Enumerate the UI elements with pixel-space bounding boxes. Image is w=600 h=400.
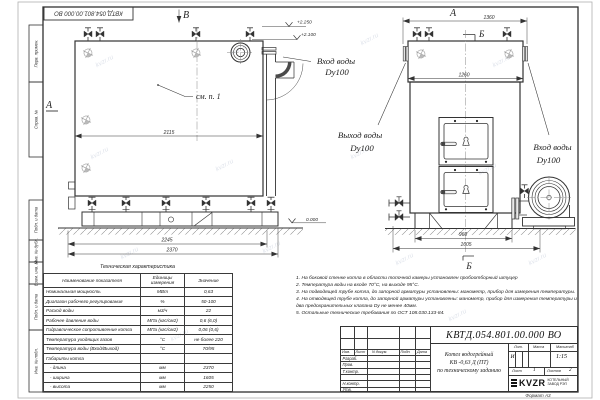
table-row: Рабочее давление водыМПа (кгс/см2)0,6 (6… [44, 316, 233, 326]
param-name: Рабочее давление воды [44, 316, 141, 326]
dim-2245: 2245 [160, 238, 172, 244]
param-name: Номинальная мощность [44, 287, 141, 297]
param-unit: МПа (кгс/см2) [141, 325, 185, 335]
stamp-inv-podl: Инв. № подл. [34, 348, 39, 374]
rev-col-izm: Изм. [342, 350, 350, 354]
docnum-top-box: КВТД.054.801.00.000 ВО [44, 7, 133, 20]
dim-1605: 1605 [460, 242, 471, 248]
table-row: Номинальная мощностьМВт0,63 [44, 287, 233, 297]
param-name: Расход воды [44, 306, 141, 316]
col-header: Наименование показателя [44, 273, 141, 287]
callout-see-p1: см. п. 1 [157, 84, 221, 101]
scale-header: Масштаб [556, 345, 574, 349]
svg-text:Dy100: Dy100 [536, 155, 561, 165]
title-block: КВТД.054.801.00.000 ВО Изм. Лист N докум… [340, 326, 578, 392]
dim-960: 960 [459, 232, 468, 238]
role-tkontr: Т.контр. [343, 369, 360, 374]
param-name: Гидравлическое сопротивление котла [44, 325, 141, 335]
param-value: 1605 [185, 373, 233, 383]
rev-col-podp: Подп. [401, 350, 411, 354]
svg-text:Выход воды: Выход воды [338, 130, 382, 140]
svg-text:Dy100: Dy100 [324, 67, 349, 77]
tech-table: Наименование показателя Единицы измерени… [43, 273, 232, 393]
table-row: Расход водым3/ч22 [44, 306, 233, 316]
param-unit: °С [141, 344, 185, 354]
valve-icon [202, 197, 210, 212]
lifting-point-icon [189, 46, 204, 61]
stamp-vzam-inv: Взам. инв. № [34, 260, 39, 286]
section-b-bottom: Б [465, 261, 472, 271]
stamp-podp-data: Подп. и дата [34, 206, 39, 233]
product-line2: КВ -0,63 Д (ПТ) [430, 359, 508, 367]
skid-base [82, 212, 278, 226]
param-value: 70/95 [185, 344, 233, 354]
side-valves [389, 197, 410, 221]
company-logo: KVZR КОТЕЛЬНЫЙ ЗАВОД РЭП [511, 376, 576, 390]
note-line: 4. На отводящей трубе котла, до запорной… [296, 297, 578, 310]
boiler-front-view: А 1360 Б 1260 [338, 8, 576, 271]
lifting-point-icon [502, 47, 517, 62]
svg-text:см. п. 1: см. п. 1 [196, 92, 221, 101]
param-unit: мм [141, 382, 185, 392]
note-line: 3. На подводящей трубе котла, до запорно… [296, 290, 578, 297]
param-unit: °С [141, 335, 185, 345]
valve-icon [96, 28, 104, 41]
door-latch [463, 185, 469, 193]
param-unit: МПа (кгс/см2) [141, 316, 185, 326]
ground-hatch [385, 229, 576, 235]
frame-stamp-column: Перв. примен. Справ. № Подп. и дата Инв.… [29, 25, 43, 392]
param-value: 2250 [185, 382, 233, 392]
dim-1260: 1260 [458, 72, 469, 78]
param-value: не более 220 [185, 335, 233, 345]
dim-2115: 2115 [163, 130, 175, 136]
boiler-door-upper [439, 118, 493, 166]
elev-2100: +2.100 [301, 32, 316, 38]
param-value: 22 [185, 306, 233, 316]
tech-table-header: Наименование показателя Единицы измерени… [44, 273, 233, 287]
inlet-pipe-elbow [262, 48, 303, 197]
scale-value: 1:15 [556, 354, 567, 360]
valve-icon [247, 197, 255, 212]
param-unit: МВт [141, 287, 185, 297]
rev-col-data: Дата [417, 350, 427, 354]
role-prov: Пров. [343, 362, 354, 367]
param-value: 0,6 (6,0) [185, 316, 233, 326]
svg-text:Вход воды: Вход воды [533, 142, 571, 152]
param-value: 2370 [185, 363, 233, 373]
valve-icon [162, 197, 170, 212]
dim-1360: 1360 [483, 15, 494, 21]
section-b-top: Б [478, 29, 485, 39]
title-block-docnum: КВТД.054.801.00.000 ВО [430, 327, 577, 344]
stamp-perv-primen: Перв. примен. [34, 40, 39, 68]
param-name: Температура уходящих газов [44, 335, 141, 345]
sheets-label: Листов [547, 369, 561, 373]
param-name: Температура воды (Вход/Выход) [44, 344, 141, 354]
product-line1: Котел водогрейный [430, 351, 508, 359]
dim-2370: 2370 [165, 248, 177, 254]
elev-0000: 0.000 [306, 217, 318, 223]
param-name: - высота [44, 382, 141, 392]
valve-icon [246, 28, 254, 41]
param-unit [141, 354, 185, 364]
valve-icon [192, 28, 200, 41]
param-unit: м3/ч [141, 306, 185, 316]
mass-header: Масса [533, 345, 544, 349]
stamp-inv-dubl: Инв. № дубл. [34, 238, 39, 264]
rev-col-docum: N докум. [372, 350, 387, 354]
flange-port [227, 39, 254, 66]
format-label: Формат А3 [498, 393, 578, 398]
lifting-point-icon [81, 46, 96, 61]
valve-icon [267, 197, 275, 212]
rev-col-list: Лист [356, 350, 366, 354]
valve-icon [88, 197, 96, 212]
valve-icon [122, 197, 130, 212]
view-a-label: А [45, 100, 53, 111]
drawing-sheet: kvzr.ru kvzr.ru kvzr.ru kvzr.ru kvzr.ru … [0, 0, 600, 400]
lit-header: Лит. [514, 345, 523, 349]
valve-icon [413, 28, 421, 41]
view-b-label: В [183, 10, 189, 21]
view-a2-label: А [449, 8, 457, 19]
valve-icon [521, 185, 529, 198]
col-header: Единицы измерения [141, 273, 185, 287]
valve-icon [503, 28, 511, 41]
table-row: - высотамм2250 [44, 382, 233, 392]
inlet-right-label: Вход воды Dy100 [528, 63, 572, 165]
lifting-point-icon [79, 161, 94, 176]
product-line3: по техническому заданию [430, 367, 508, 375]
technical-notes: 1. На боковой стенке котла в области топ… [296, 276, 578, 318]
param-unit: % [141, 297, 185, 307]
param-value: 0,63 [185, 287, 233, 297]
boiler-side-view: 2115 2245 2370 +2.250 +2.100 0.000 А [45, 10, 355, 258]
param-name: - ширина [44, 373, 141, 383]
product-name: Котел водогрейный КВ -0,63 Д (ПТ) по тех… [430, 344, 508, 391]
role-utv: Утв. [343, 387, 352, 392]
company-line2: ЗАВОД РЭП [548, 383, 569, 387]
note-line: 2. Температура воды на входе 70°С, на вы… [296, 283, 578, 290]
note-line: 5. Остальные технические требования по О… [296, 311, 578, 318]
valve-icon [84, 28, 92, 41]
lit-value: И [511, 354, 515, 360]
valve-icon [425, 28, 433, 41]
logo-bars-icon [511, 379, 517, 387]
param-name: - длина [44, 363, 141, 373]
note-line: 1. На боковой стенке котла в области топ… [296, 276, 578, 283]
param-unit: мм [141, 363, 185, 373]
stamp-sprav-no: Справ. № [34, 110, 39, 129]
param-value: 0,06 (0,6) [185, 325, 233, 335]
front-base [415, 213, 512, 229]
svg-text:Вход воды: Вход воды [317, 56, 355, 66]
lifting-point-icon [79, 113, 94, 128]
svg-text:Dy100: Dy100 [349, 143, 374, 153]
sheets-value: 2 [569, 368, 572, 373]
table-row: - ширинамм1605 [44, 373, 233, 383]
tech-table-title: Техническая характеристика [43, 264, 232, 270]
param-value: 50-100 [185, 297, 233, 307]
table-row: Температура воды (Вход/Выход)°С70/95 [44, 344, 233, 354]
elev-2250: +2.250 [297, 19, 312, 25]
col-header: Значение [185, 273, 233, 287]
param-name: Габариты котла [44, 354, 141, 364]
boiler-door-lower [439, 167, 493, 213]
ground-hatch [58, 228, 303, 234]
table-row: Габариты котла [44, 354, 233, 364]
sheet-label: Лист [512, 369, 522, 373]
title-block-right: Лит. Масса Масштаб И 1:15 Лист 1 Листов … [508, 344, 577, 391]
fan-blower [512, 176, 575, 229]
param-name: Диапазон рабочего регулирования [44, 297, 141, 307]
sheet-value: 1 [533, 368, 536, 373]
role-nkontr: Н.контр. [343, 381, 360, 386]
table-row: Диапазон рабочего регулирования%50-100 [44, 297, 233, 307]
lifting-point-icon [414, 47, 429, 62]
docnum-top-text: КВТД.054.801.00.000 ВО [54, 10, 123, 16]
logo-text: KVZR [519, 378, 546, 388]
table-row: Температура уходящих газов°Сне более 220 [44, 335, 233, 345]
door-latch [463, 137, 469, 145]
table-row: - длинамм2370 [44, 363, 233, 373]
table-row: Гидравлическое сопротивление котлаМПа (к… [44, 325, 233, 335]
role-razrab: Разраб. [343, 356, 358, 361]
param-unit: мм [141, 373, 185, 383]
param-value [185, 354, 233, 364]
stamp-podp-data-2: Подп. и дата [34, 293, 39, 320]
